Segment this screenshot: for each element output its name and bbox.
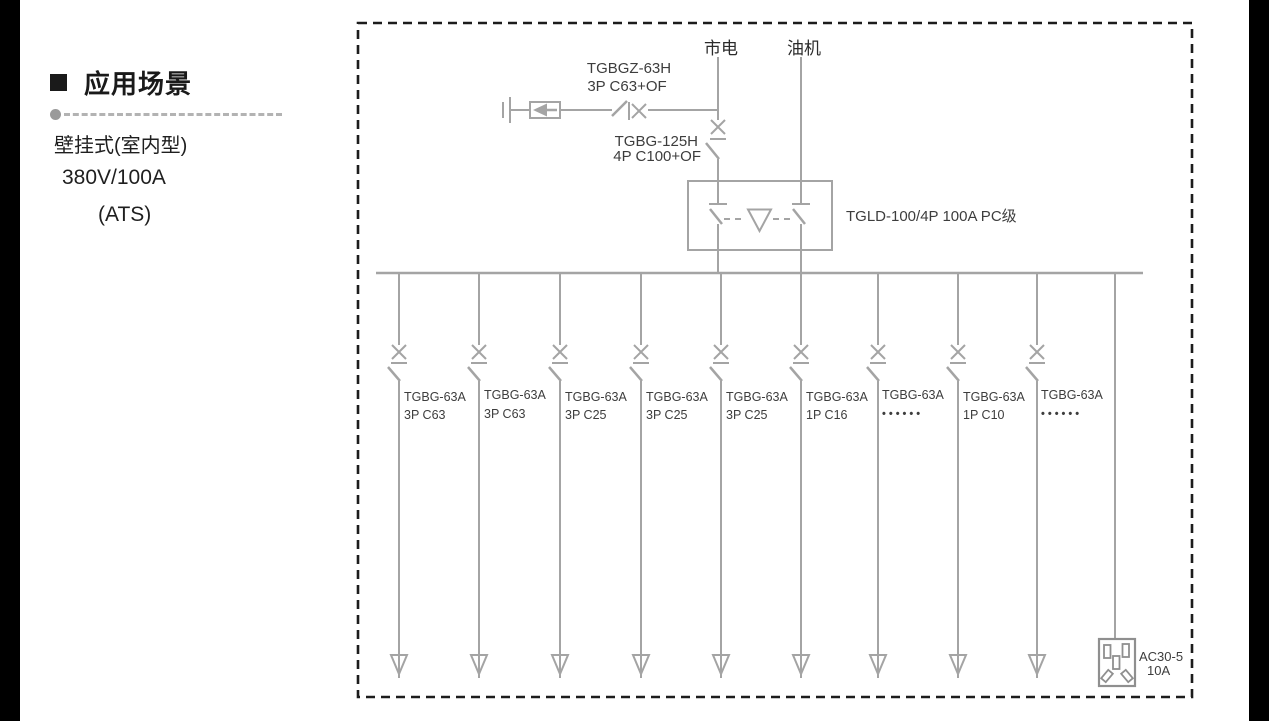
generator-label: 油机: [787, 39, 821, 58]
branch-spec: ••••••: [1041, 408, 1082, 420]
branch-spec: 3P C25: [646, 408, 688, 422]
socket-rating: 10A: [1147, 663, 1170, 678]
branch-spec: ••••••: [882, 408, 923, 420]
surge-breaker-spec: 3P C63+OF: [587, 78, 666, 95]
branch-spec: 3P C25: [726, 408, 768, 422]
mains-feed-breaker: [706, 57, 726, 181]
branch-name: TGBG-63A: [806, 390, 868, 404]
spd-icon: [530, 102, 560, 118]
feeder-branch-3: TGBG-63A 3P C25: [549, 274, 627, 678]
branch-spec: 1P C10: [963, 408, 1005, 422]
socket-model: AC30-5: [1139, 649, 1183, 664]
feeder-branch-7: TGBG-63A ••••••: [867, 274, 944, 678]
diagram-dashed-border: [358, 23, 1192, 697]
branch-name: TGBG-63A: [565, 390, 627, 404]
mains-label: 市电: [704, 39, 738, 58]
branch-spec: 3P C63: [484, 407, 526, 421]
feeder-branch-1: TGBG-63A 3P C63: [388, 274, 466, 678]
branch-spec: 1P C16: [806, 408, 848, 422]
feeder-branch-9: TGBG-63A ••••••: [1026, 274, 1103, 678]
incoming-breaker-spec: 4P C100+OF: [613, 148, 701, 165]
branch-name: TGBG-63A: [963, 390, 1025, 404]
feeder-branch-4: TGBG-63A 3P C25: [630, 274, 708, 678]
ground-icon: [503, 97, 530, 123]
circuit-diagram: 市电 油机: [0, 0, 1269, 721]
feeder-branch-6: TGBG-63A 1P C16: [790, 274, 868, 678]
socket-branch: [1099, 274, 1135, 686]
ats-actuator-icon: [748, 210, 771, 232]
branch-name: TGBG-63A: [646, 390, 708, 404]
page: 应用场景 壁挂式(室内型) 380V/100A (ATS) 市电 油机: [0, 0, 1269, 721]
surge-breaker-name: TGBGZ-63H: [587, 60, 671, 77]
surge-protection-branch: [503, 97, 718, 123]
ats-label: TGLD-100/4P 100A PC级: [846, 208, 1017, 225]
ats-switch-symbol: [688, 181, 832, 274]
branch-name: TGBG-63A: [726, 390, 788, 404]
feeder-branch-2: TGBG-63A 3P C63: [468, 274, 546, 678]
socket-icon: [1099, 639, 1135, 686]
branch-name: TGBG-63A: [404, 390, 466, 404]
feeder-branch-8: TGBG-63A 1P C10: [947, 274, 1025, 678]
branch-name: TGBG-63A: [882, 388, 944, 402]
branch-spec: 3P C25: [565, 408, 607, 422]
branch-spec: 3P C63: [404, 408, 446, 422]
branch-name: TGBG-63A: [484, 388, 546, 402]
feeder-branch-5: TGBG-63A 3P C25: [710, 274, 788, 678]
branch-name: TGBG-63A: [1041, 388, 1103, 402]
